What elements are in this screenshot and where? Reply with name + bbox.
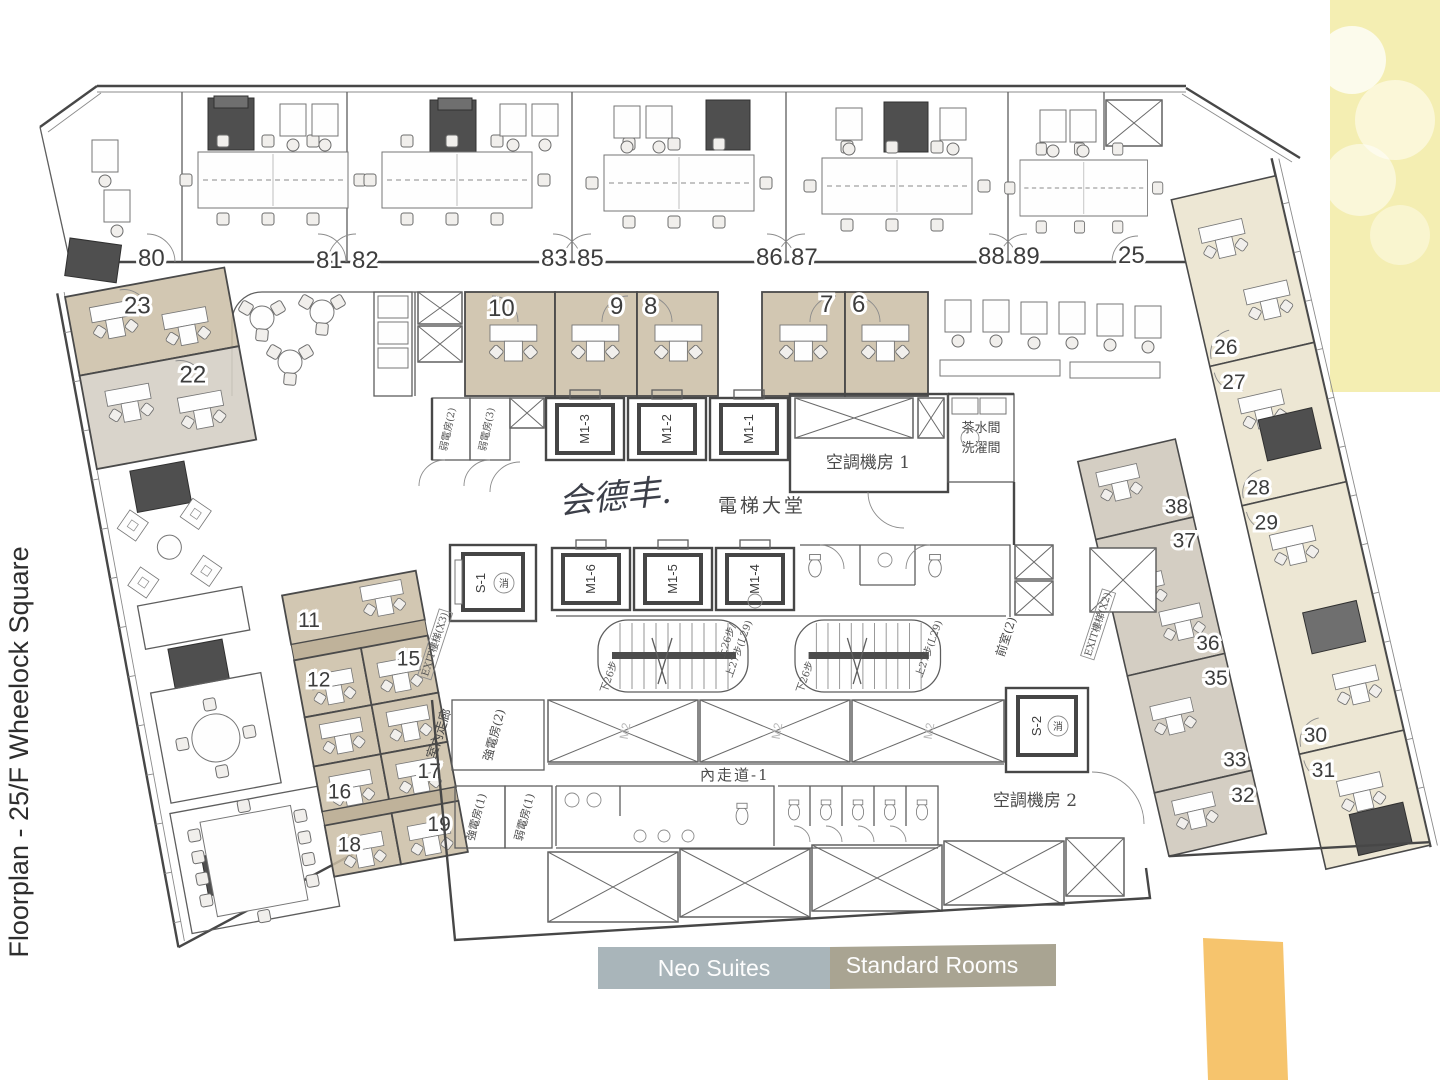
lift-label-m1-2: M1-2	[659, 414, 674, 444]
page-title: Floorplan - 25/F Wheelock Square	[4, 546, 34, 957]
room-number-11: 11	[298, 609, 320, 632]
lift-label-m1-3: M1-3	[577, 414, 592, 444]
label-weak-elec-3: 弱電房(3)	[476, 406, 498, 452]
label-corridor-1: 內走道-1	[700, 766, 770, 784]
room-number-16: 16	[328, 781, 351, 804]
room-number-83: 83	[541, 245, 568, 272]
shaft-label-m2b: M2	[769, 721, 786, 740]
room-number-30: 30	[1304, 724, 1327, 747]
room-number-29: 29	[1255, 512, 1278, 535]
lift-label-m1-4: M1-4	[747, 564, 762, 594]
label-anteroom-2: 前室(2)	[992, 615, 1019, 659]
room-number-23: 23	[124, 293, 151, 320]
handwriting-wheelock: 会德丰.	[557, 471, 673, 523]
orange-note	[1203, 938, 1288, 1080]
label-machine-room-2: 空調機房 2	[993, 791, 1077, 811]
fire-lift-glyph-s1: 消	[499, 577, 509, 590]
room-number-19: 19	[427, 813, 450, 836]
room-number-35: 35	[1204, 667, 1227, 690]
top-office-band: 80 81 82 83 85 86 87 88 89 25	[40, 86, 1186, 283]
room-number-26: 26	[1214, 336, 1237, 359]
suite-band: 10 9 8 7 6	[232, 291, 1161, 396]
legend-neo-suites-label: Neo Suites	[658, 955, 771, 981]
room-number-10: 10	[488, 295, 515, 322]
room-number-27: 27	[1222, 371, 1245, 394]
legend: Neo Suites Standard Rooms	[598, 944, 1056, 989]
room-number-33: 33	[1223, 749, 1246, 772]
floorplan-drawing: Floorplan - 25/F Wheelock Square	[0, 0, 1440, 1080]
label-wash-room: 洗濯間	[961, 441, 1000, 456]
room-number-36: 36	[1196, 632, 1219, 655]
fire-lift-glyph-s2: 消	[1053, 720, 1063, 733]
label-strong-elec-1: 強電房(1)	[464, 792, 489, 842]
room-number-18: 18	[338, 834, 361, 857]
label-weak-elec-1: 弱電房(1)	[512, 792, 537, 842]
room-number-25: 25	[1118, 242, 1145, 269]
room-number-12: 12	[307, 668, 330, 691]
room-number-81: 81	[316, 247, 343, 274]
room-number-28: 28	[1247, 476, 1270, 499]
label-weak-elec-2: 弱電房(2)	[437, 406, 459, 452]
lift-label-m1-6: M1-6	[583, 564, 598, 594]
room-number-15: 15	[397, 648, 420, 671]
room-number-89: 89	[1013, 243, 1040, 270]
room-number-22: 22	[180, 362, 207, 389]
legend-standard-rooms-label: Standard Rooms	[846, 952, 1019, 978]
room-number-31: 31	[1312, 759, 1335, 782]
yellow-note	[1318, 0, 1440, 392]
lounge-seating	[114, 495, 224, 601]
shaft-label-m2c: M2	[921, 721, 938, 740]
lift-label-m1-5: M1-5	[665, 564, 680, 594]
floorplan-page: Floorplan - 25/F Wheelock Square	[0, 0, 1440, 1080]
room-number-88: 88	[978, 243, 1005, 270]
room-number-9: 9	[610, 293, 623, 320]
lift-label-s1: S-1	[473, 573, 488, 593]
lift-label-s2: S-2	[1029, 716, 1044, 736]
room-number-80: 80	[138, 245, 165, 272]
label-pantry: 茶水間	[961, 420, 1000, 436]
room-number-7: 7	[820, 291, 833, 318]
room-number-38: 38	[1165, 495, 1188, 518]
lift-label-m1-1: M1-1	[741, 414, 756, 444]
label-strong-elec-2: 強電房(2)	[480, 707, 508, 762]
room-number-32: 32	[1231, 784, 1254, 807]
room-number-37: 37	[1173, 529, 1196, 552]
shaft-label-m2a: M2	[617, 721, 634, 740]
label-lift-lobby: 電梯大堂	[718, 495, 806, 517]
room-number-87: 87	[791, 244, 818, 271]
room-number-6: 6	[852, 291, 865, 318]
room-number-82: 82	[352, 247, 379, 274]
room-number-86: 86	[756, 244, 783, 271]
room-number-85: 85	[577, 245, 604, 272]
room-number-8: 8	[644, 293, 657, 320]
label-machine-room-1: 空調機房 1	[826, 453, 910, 473]
